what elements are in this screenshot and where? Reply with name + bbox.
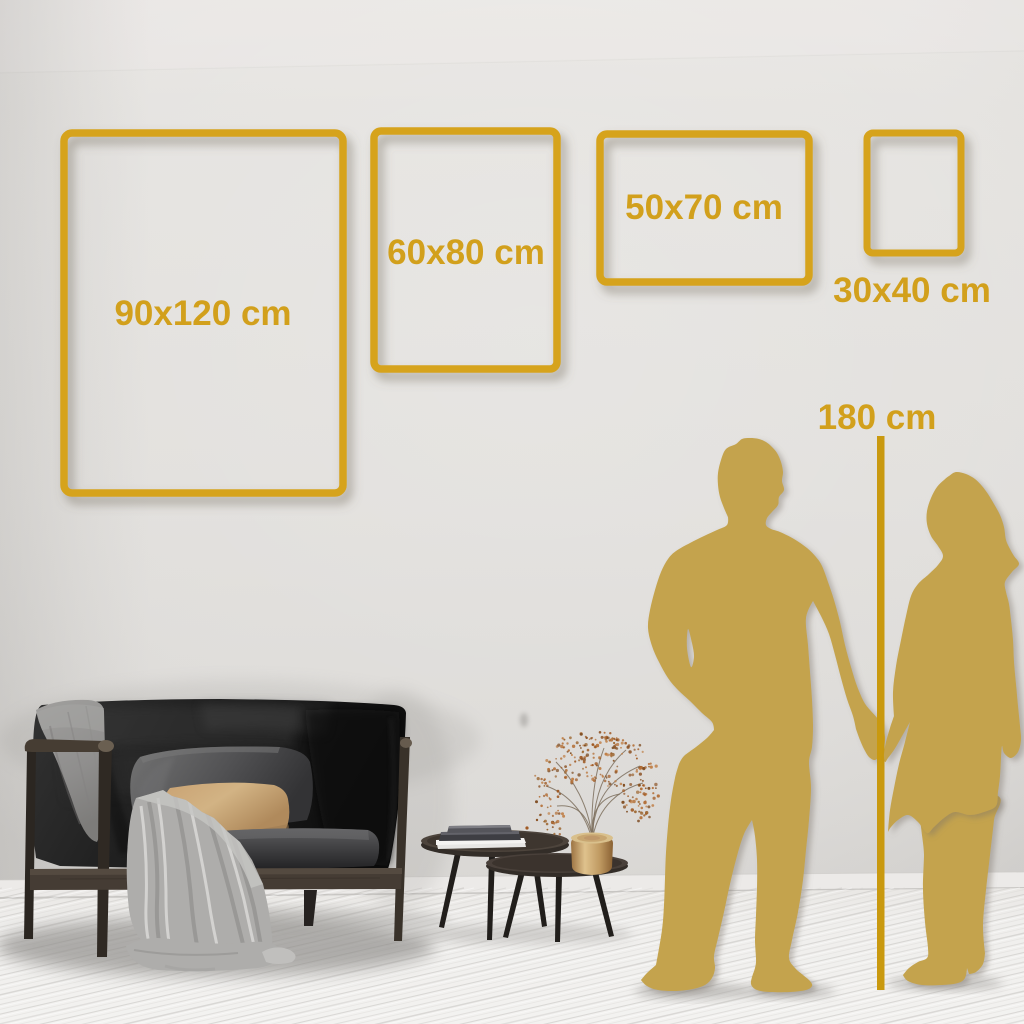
- svg-text:50x70 cm: 50x70 cm: [625, 188, 783, 227]
- svg-text:180 cm: 180 cm: [818, 398, 937, 437]
- svg-text:90x120 cm: 90x120 cm: [114, 294, 291, 333]
- svg-text:30x40 cm: 30x40 cm: [833, 271, 991, 310]
- svg-text:60x80 cm: 60x80 cm: [387, 233, 545, 272]
